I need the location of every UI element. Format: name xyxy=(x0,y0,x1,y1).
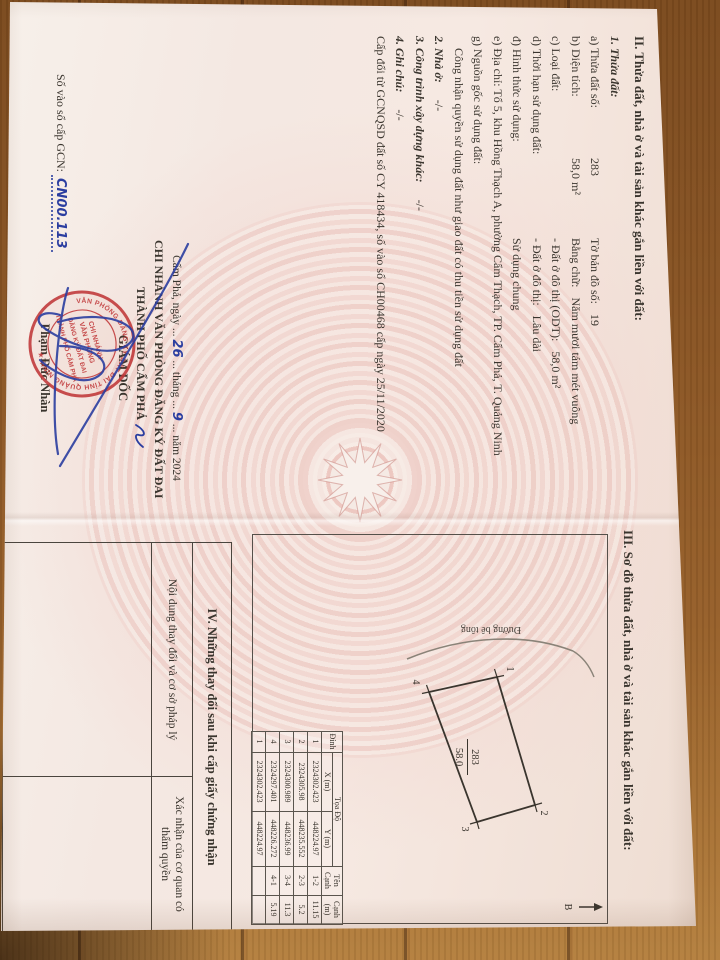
col-header-coords-group: Tọa Độ xyxy=(332,752,342,866)
vertex-label-1: 1 xyxy=(504,667,515,672)
section-4-col-right-header: Xác nhận của cơ quan có thẩm quyền xyxy=(152,777,193,932)
item-other-construction-line: 3. Công trình xây dựng khác: -/- xyxy=(410,36,430,510)
item-notes-value: -/- xyxy=(394,109,408,120)
use-term-value: Lâu dài xyxy=(530,316,544,352)
parcel-area-in-diagram: 58.0 xyxy=(453,748,464,766)
parcel-number-label: a) Thửa đất số: xyxy=(585,36,605,108)
handwritten-signature xyxy=(30,226,210,490)
use-term-label: d) Thời hạn sử dụng đất: xyxy=(527,36,547,154)
photo-of-land-certificate: II. Thửa đất, nhà ở và tài sản khác gắn … xyxy=(0,0,720,960)
origin-label-line: g) Nguồn gốc sử dụng đất: xyxy=(468,36,488,510)
section-4-col-left-header: Nội dung thay đổi và cơ sở pháp lý xyxy=(152,543,193,777)
map-sheet-value: 19 xyxy=(589,314,603,326)
address-line: e) Địa chỉ: Tổ 5, khu Hồng Thạch A, phườ… xyxy=(488,36,508,510)
section-2-heading: II. Thửa đất, nhà ở và tài sản khác gắn … xyxy=(631,36,648,510)
land-type-detail: - Đất ở đô thị (ODT): xyxy=(550,238,564,341)
reissue-note-line: Cấp đổi từ GCNQSD đất số CY 418434, số v… xyxy=(371,36,391,510)
item-house-label: 2. Nhà ở: xyxy=(433,36,447,83)
section-2-sub-heading: 1. Thửa đất: xyxy=(605,36,625,510)
coordinate-table: Đỉnh Tọa Độ Tên Cạnh Cạnh (m) X (m) Y (m… xyxy=(252,731,343,925)
land-type-label: c) Loại đất: xyxy=(546,36,566,91)
coord-row-3: 32324300.989448236.993-411.3 xyxy=(280,731,294,924)
area-words-label: Bằng chữ: xyxy=(569,238,583,288)
coord-row-4: 42324297.401448226.2724-15.19 xyxy=(266,731,280,924)
row-use-form: đ) Hình thức sử dụng: Sử dụng chung xyxy=(507,36,527,510)
item-house-value: -/- xyxy=(433,100,447,111)
coord-row-1: 12324302.423448224.971-211.15 xyxy=(308,731,322,924)
land-type-area: 58,0 m² xyxy=(550,351,564,388)
parcel-number-value: 283 xyxy=(585,158,605,176)
vertex-label-4: 4 xyxy=(410,680,421,685)
area-value: 58,0 m² xyxy=(566,158,586,195)
section-4-heading: IV. Những thay đổi sau khi cấp giấy chứn… xyxy=(193,543,232,932)
use-form-label: đ) Hình thức sử dụng: xyxy=(507,36,527,142)
item-other-construction-label: 3. Công trình xây dựng khác: xyxy=(413,36,427,183)
section-2-block: II. Thửa đất, nhà ở và tài sản khác gắn … xyxy=(371,36,649,510)
road-line xyxy=(407,639,573,659)
row-use-term: d) Thời hạn sử dụng đất: - Đất ở đô thị:… xyxy=(527,36,547,510)
col-header-y: Y (m) xyxy=(322,811,332,866)
item-notes-line: 4. Ghi chú: -/- xyxy=(390,36,410,510)
north-label: B xyxy=(562,904,573,911)
area-words-value: Năm mươi tám mét vuông xyxy=(569,298,583,425)
registry-number-label: Số vào sổ cấp GCN: xyxy=(54,74,68,172)
row-area: b) Diện tích: 58,0 m² Bằng chữ:Năm mươi … xyxy=(566,36,586,510)
section-4-empty-body xyxy=(3,543,152,932)
parcel-number-in-diagram: 283 xyxy=(469,749,480,765)
document-content-rotated: II. Thửa đất, nhà ở và tài sản khác gắn … xyxy=(0,0,656,934)
north-arrow-icon: B xyxy=(562,903,603,911)
vertex-label-2: 2 xyxy=(538,811,549,816)
col-header-x: X (m) xyxy=(322,752,332,811)
parcel-diagram-box: Đường bê tông 1 2 3 4 xyxy=(252,534,608,924)
col-header-point: Đỉnh xyxy=(322,731,342,752)
use-form-value: Sử dụng chung xyxy=(511,238,525,311)
area-label: b) Diện tích: xyxy=(566,36,586,97)
coord-row-2: 22324305.98448235.5522-35.2 xyxy=(294,731,308,924)
row-land-type: c) Loại đất: - Đất ở đô thị (ODT):58,0 m… xyxy=(546,36,566,510)
item-house-line: 2. Nhà ở: -/- xyxy=(429,36,449,510)
col-header-edge: Tên Cạnh xyxy=(322,866,342,895)
origin-value-line: Công nhận quyền sử dụng đất như giao đất… xyxy=(449,36,469,510)
row-parcel-number: a) Thửa đất số: 283 Tờ bản đồ số:19 xyxy=(585,36,605,510)
use-term-detail: - Đất ở đô thị: xyxy=(530,238,544,306)
coord-row-5: 12324302.423448224.97 xyxy=(252,731,266,924)
parcel-outline xyxy=(429,677,535,822)
section-3-heading: III. Sơ đồ thửa đất, nhà ở và tài sản kh… xyxy=(620,530,636,932)
road-label: Đường bê tông xyxy=(461,624,521,635)
item-notes-label: 4. Ghi chú: xyxy=(394,36,408,92)
col-header-length: Cạnh (m) xyxy=(322,895,342,924)
certificate-paper: II. Thửa đất, nhà ở và tài sản khác gắn … xyxy=(0,0,702,938)
registry-number-line: Số vào sổ cấp GCN: CN00.113 xyxy=(53,74,68,252)
corner-ticks xyxy=(422,669,542,829)
map-sheet-label: Tờ bản đồ số: xyxy=(589,238,603,304)
road-line-hook xyxy=(573,651,594,677)
item-other-construction-value: -/- xyxy=(413,200,427,211)
section-4-table: IV. Những thay đổi sau khi cấp giấy chứn… xyxy=(2,542,232,932)
vertex-label-3: 3 xyxy=(459,827,470,832)
